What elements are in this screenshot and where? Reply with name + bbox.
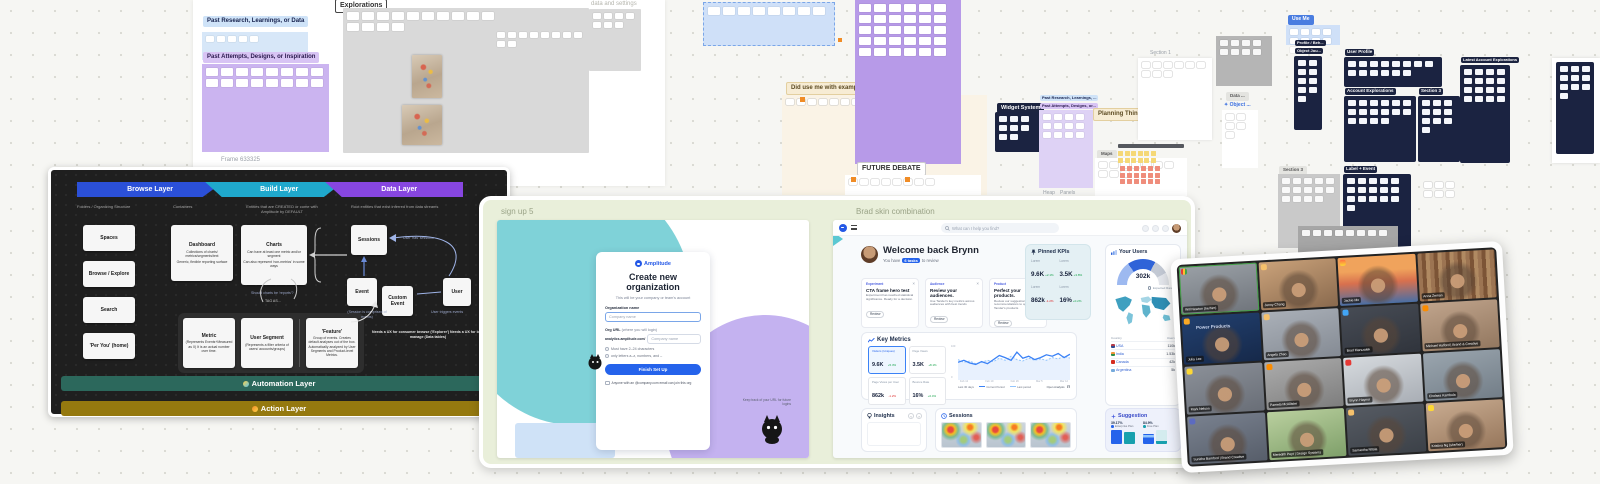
sparkle-icon <box>1111 414 1116 419</box>
attempts-panel[interactable] <box>202 64 329 152</box>
country-table: CountryUsers USA110k India1.53k Canada42… <box>1111 334 1175 374</box>
session-heatmap[interactable] <box>986 422 1027 448</box>
wireframe-chip <box>1165 162 1173 168</box>
attempts-pill-small[interactable]: Past Attempts, Designs, or... <box>1040 103 1098 109</box>
wireframe-chip <box>1582 75 1590 81</box>
fire-reaction-icon <box>1340 260 1346 266</box>
avatar[interactable] <box>1172 224 1181 233</box>
green-frame[interactable]: sign up 5 Brad skin combination Amplitud… <box>479 196 1195 468</box>
video-tile[interactable]: Michael Halford | Brand & Creative <box>1420 299 1500 351</box>
wireframe-chip <box>1144 151 1149 156</box>
wireframe-chip <box>904 4 916 12</box>
orange-sticky[interactable] <box>800 97 805 102</box>
kpi-item[interactable]: Lorem862k-1.2% <box>1031 285 1057 307</box>
video-tile[interactable]: Mark Nelson <box>1184 362 1264 414</box>
wireframe-chip <box>1346 230 1354 236</box>
wireframe-chip <box>859 37 871 45</box>
wireframe-chip <box>626 13 634 19</box>
wireframe-chip <box>1309 60 1317 66</box>
whiteboard-photo[interactable] <box>412 55 442 98</box>
wireframe-chip <box>1054 114 1062 120</box>
research-pill-small[interactable]: Past Research, Learnings, ... <box>1040 95 1098 101</box>
wireframe-chip <box>919 4 931 12</box>
wireframe-chip <box>407 12 419 20</box>
menu-icon[interactable] <box>851 225 857 230</box>
research-frame[interactable]: Past Research, Learnings, or Data Past A… <box>193 0 665 186</box>
wireframe-chip <box>1118 158 1123 163</box>
wireframe-chip <box>1347 178 1355 184</box>
latest-account-panel[interactable] <box>1460 65 1510 163</box>
tools-icon <box>252 406 258 412</box>
table-row[interactable]: USA110k <box>1111 342 1175 350</box>
wireframe-chip <box>859 48 871 56</box>
gray-widget-panel[interactable] <box>1216 36 1272 86</box>
trophy-reaction-icon <box>1184 318 1190 324</box>
wireframe-chip <box>1253 40 1261 46</box>
suggestion-group[interactable]: 39.17% Enterprise Plan <box>1111 421 1135 444</box>
amplitude-logo-icon <box>635 260 642 267</box>
wireframe-chip <box>1141 166 1146 171</box>
orange-sticky-3[interactable] <box>905 177 910 182</box>
wireframe-chip <box>1444 109 1452 115</box>
wireframe-chip <box>1381 118 1389 124</box>
video-tile[interactable]: Kristina Ng (she/her) <box>1425 399 1505 451</box>
video-tile[interactable]: Brad Marszalek <box>1340 304 1420 356</box>
wireframe-chip <box>206 79 218 87</box>
task-card-audience[interactable]: Audience× Review your audiences. Use Tan… <box>925 278 983 328</box>
user-profile-label[interactable]: User Profile <box>1345 49 1374 56</box>
wireframe-chip <box>1298 87 1306 93</box>
wireframe-chip <box>798 7 810 15</box>
table-row[interactable]: Canada42k <box>1111 359 1175 367</box>
wireframe-chip <box>1560 75 1568 81</box>
chart-reaction-icon <box>1181 269 1187 275</box>
wireframe-chip <box>1021 116 1029 122</box>
close-icon[interactable]: × <box>912 281 915 286</box>
edge-frame[interactable] <box>1552 58 1600 163</box>
wireframe-chip <box>1293 196 1301 202</box>
video-tile[interactable]: Jackie Mo <box>1337 254 1417 306</box>
wireframe-chip <box>1368 230 1376 236</box>
review-button[interactable]: Review <box>994 320 1012 327</box>
latest-account-explorations-label[interactable]: Latest Account Explorations <box>1461 57 1519 63</box>
wireframe-chip <box>1359 70 1367 76</box>
wireframe-chip <box>1142 71 1150 77</box>
wireframe-chip <box>1110 162 1118 168</box>
wireframe-chip <box>1226 123 1234 129</box>
table-row[interactable]: India1.53k <box>1111 350 1175 358</box>
checkbox-icon[interactable] <box>605 381 610 386</box>
use-me-label[interactable]: Use Me <box>1288 15 1314 25</box>
video-tile[interactable]: Chelsea Kambula <box>1422 349 1502 401</box>
wireframe-chip <box>482 12 494 20</box>
wireframe-chip <box>1138 151 1143 156</box>
wireframe-chip <box>889 4 901 12</box>
wireframe-chip <box>1347 196 1355 202</box>
wireframe-chip <box>1127 179 1132 184</box>
open-analysis-link[interactable]: Open Analysis <box>1047 385 1070 389</box>
key-metrics-chart-area[interactable]: 1000 Feb 12Feb 19Feb 26Mar 5Mar 12 Last … <box>952 346 1070 405</box>
wireframe-chip <box>377 23 389 31</box>
wireframe-chip <box>859 15 871 23</box>
video-tile[interactable]: Meredith Peyt | Design Systems <box>1266 408 1346 460</box>
close-icon[interactable]: × <box>976 281 979 286</box>
purple-column-panel[interactable] <box>855 0 961 164</box>
section1-label[interactable]: Section 1 <box>1150 50 1171 56</box>
metric-chip-pv-per-user[interactable]: Page Views per User862k -1.2% <box>868 377 906 405</box>
video-tile[interactable]: Angela Zhao <box>1261 308 1341 360</box>
review-button[interactable]: Review <box>866 311 884 318</box>
wireframe-chip <box>1326 187 1334 193</box>
wireframe-chip <box>889 26 901 34</box>
wireframe-chip <box>1392 61 1400 67</box>
signup-frame-label[interactable]: sign up 5 <box>501 207 533 216</box>
wireframe-chip <box>934 26 946 34</box>
next-button[interactable]: › <box>916 413 922 419</box>
wireframe-chip <box>1313 230 1321 236</box>
wireframe-chip <box>1444 118 1452 124</box>
wireframe-chip <box>1446 182 1454 188</box>
wireframe-chip <box>1315 187 1323 193</box>
help-icon[interactable] <box>1142 225 1149 232</box>
org-name-input[interactable]: Company name <box>605 312 701 322</box>
chat-reaction-icon <box>1342 310 1348 316</box>
wireframe-chip <box>1347 187 1355 193</box>
wireframe-chip <box>1560 84 1568 90</box>
wireframe-chip <box>1358 196 1366 202</box>
gauge-value: 302k <box>1111 273 1175 280</box>
wireframe-chip <box>552 32 560 38</box>
section1-frame[interactable] <box>1138 58 1212 140</box>
wireframe-chip <box>1120 173 1125 178</box>
wireframe-chip <box>221 68 233 76</box>
dashboard-screen: What can I help you find? Welcome back B… <box>833 220 1187 458</box>
welcome-heading: Welcome back Brynn <box>883 245 979 256</box>
wireframe-chip <box>1120 166 1125 171</box>
review-button[interactable]: Review <box>930 316 948 323</box>
signup-subtitle: This will be your company or team's acco… <box>605 296 701 300</box>
table-row[interactable]: Argentina5k <box>1111 367 1175 374</box>
wireframe-chip <box>1403 100 1411 106</box>
wireframe-chip <box>1138 158 1143 163</box>
prev-button[interactable]: ‹ <box>908 413 914 419</box>
wireframe-chip <box>1391 178 1399 184</box>
wireframe-chip <box>281 68 293 76</box>
wireframe-chip <box>1348 70 1356 76</box>
wireframe-chip <box>1298 69 1306 75</box>
wireframe-chip <box>1309 78 1317 84</box>
legend-current: Current Period <box>979 385 1005 389</box>
wireframe-chip <box>1571 84 1579 90</box>
future-debate-label[interactable]: FUTURE DEBATE <box>857 162 926 176</box>
wireframe-chip <box>783 7 795 15</box>
wireframe-chip <box>1403 109 1411 115</box>
wireframe-chip <box>1131 151 1136 156</box>
object-journey-label[interactable]: Object Jou... <box>1295 48 1323 54</box>
hand-reaction-icon <box>1260 264 1266 270</box>
wireframe-chip <box>1435 191 1443 197</box>
video-tile[interactable]: Samantha Ntlala <box>1346 404 1426 456</box>
video-tile[interactable]: Will Newton (he/him) <box>1179 263 1259 315</box>
wireframe-chip <box>1282 187 1290 193</box>
data-settings-panel[interactable] <box>589 9 641 71</box>
wireframe-chip <box>1253 49 1261 55</box>
wireframe-chip <box>723 7 735 15</box>
wireframe-chip <box>1560 93 1568 99</box>
research-pill[interactable]: Past Research, Learnings, or Data <box>203 16 308 27</box>
wireframe-chip <box>1304 178 1312 184</box>
wireframe-chip <box>871 179 879 185</box>
video-tile[interactable]: Power ProductsJulia Lee <box>1182 313 1262 365</box>
url-prefix: analytics.amplitude.com/ <box>605 337 645 341</box>
video-grid: Will Newton (he/him) Jenny Chang Jackie … <box>1177 247 1508 467</box>
session-heatmap[interactable] <box>941 422 982 448</box>
metric-chip-visitors[interactable]: Visitors (Uniques)9.6K +5.3% <box>868 346 906 374</box>
wireframe-chip <box>251 79 263 87</box>
video-tile[interactable]: Anna Zeman <box>1417 249 1497 301</box>
wireframe-chip <box>392 23 404 31</box>
attempts-pill[interactable]: Past Attempts, Designs, or Inspiration <box>203 52 319 63</box>
world-map[interactable] <box>1111 292 1177 326</box>
topbar-icons <box>1142 224 1181 233</box>
wireframe-chip <box>1282 178 1290 184</box>
selection-handle[interactable] <box>838 38 842 42</box>
wireframe-chip <box>1293 187 1301 193</box>
wireframe-chip <box>738 7 750 15</box>
wireframe-chip <box>1422 127 1430 133</box>
wireframe-chip <box>1392 100 1400 106</box>
profile-panel[interactable] <box>1294 56 1322 130</box>
wireframe-chip <box>392 12 404 20</box>
wireframe-chip <box>1290 29 1298 35</box>
video-tile[interactable]: Pamela McAllister <box>1264 358 1344 410</box>
wireframe-chip <box>1392 109 1400 115</box>
wireframe-chip <box>236 79 248 87</box>
metric-chip-pageviews[interactable]: Page Views3.5K +8.1% <box>909 346 947 374</box>
object-panel[interactable] <box>1222 110 1258 168</box>
wireframe-chip <box>1414 61 1422 67</box>
blue-heart-reaction-icon <box>1189 418 1195 424</box>
orange-reaction-icon <box>1266 364 1272 370</box>
wireframe-chip <box>904 37 916 45</box>
wireframe-chip <box>1497 69 1505 75</box>
wireframe-chip <box>893 179 901 185</box>
video-tile[interactable]: Jenny Chang <box>1258 258 1338 310</box>
gray-bar[interactable] <box>1118 144 1184 148</box>
user-profile-panel[interactable] <box>1344 57 1442 87</box>
wireframe-chip <box>1571 66 1579 72</box>
action-layer-bar: Action Layer <box>61 401 497 416</box>
wireframe-chip <box>1293 178 1301 184</box>
wireframe-chip <box>753 7 765 15</box>
video-tile[interactable]: Sunitha Bamford | Brand Creative <box>1187 412 1267 464</box>
wireframe-chip <box>362 23 374 31</box>
wireframe-chip <box>889 48 901 56</box>
sessions-panel: Sessions <box>935 408 1077 452</box>
wireframe-chip <box>1110 171 1118 177</box>
org-url-input[interactable]: Company name <box>647 334 701 344</box>
dashboard-frame-label[interactable]: Brad skin combination <box>856 207 935 216</box>
explorations-panel[interactable] <box>343 8 589 153</box>
wireframe-chip <box>926 179 934 185</box>
wireframe-chip <box>874 37 886 45</box>
account-explorations-panel[interactable] <box>1344 96 1416 162</box>
wireframe-chip <box>808 99 816 105</box>
wireframe-chip <box>934 48 946 56</box>
join-org-checkbox-row[interactable]: Anyone with an @company.com email can jo… <box>605 381 701 386</box>
finish-setup-button[interactable]: Finish Set Up <box>605 364 701 375</box>
scatter-wireframes[interactable] <box>1420 178 1468 218</box>
orange-sticky-2[interactable] <box>851 177 856 182</box>
wireframe-chip <box>1301 29 1309 35</box>
insights-panel: Insights ‹› <box>861 408 927 452</box>
wireframe-chip <box>1127 173 1132 178</box>
wireframe-chip <box>1381 70 1389 76</box>
wireframe-chip <box>311 68 323 76</box>
wireframe-chip <box>889 37 901 45</box>
wireframe-chip <box>1231 40 1239 46</box>
wireframe-chip <box>1186 62 1194 68</box>
wireframe-chip <box>1237 114 1245 120</box>
wireframe-chip <box>1298 60 1306 66</box>
wireframe-chip <box>1464 69 1472 75</box>
wireframe-chip <box>1141 179 1146 184</box>
future-debate-row[interactable] <box>845 175 981 195</box>
wireframe-chip <box>530 32 538 38</box>
wireframe-chip <box>1359 109 1367 115</box>
wireframe-chip <box>1134 179 1139 184</box>
wireframe-chip <box>1220 49 1228 55</box>
metric-chip-bounce[interactable]: Bounce Rate16% +0.4% <box>909 377 947 405</box>
wireframe-chip <box>934 4 946 12</box>
wireframe-chip <box>347 23 359 31</box>
user-avatar[interactable] <box>861 246 878 263</box>
wireframe-chip <box>1134 173 1139 178</box>
wireframe-chip <box>228 36 236 42</box>
wireframe-chip <box>508 41 516 47</box>
account-explorations-label[interactable]: Account Explorations <box>1345 88 1396 95</box>
frame-caption[interactable]: Frame 633325 <box>221 157 260 163</box>
wireframe-chip <box>874 4 886 12</box>
session-heatmap[interactable] <box>1030 422 1071 448</box>
cat-mascot-icon-2 <box>759 415 785 445</box>
wireframe-chip <box>999 125 1007 131</box>
wireframe-chip <box>1381 109 1389 115</box>
argentina-flag-icon <box>1111 369 1115 373</box>
wireframe-chip <box>1497 87 1505 93</box>
kpi-item[interactable]: Lorem3.5K+3.8% <box>1060 259 1086 281</box>
whiteboard-photo-2[interactable] <box>402 105 442 145</box>
wireframe-chip <box>919 26 931 34</box>
wireframe-chip <box>236 68 248 76</box>
signup-card: Amplitude Create new organization This w… <box>596 252 710 450</box>
red-stickies[interactable] <box>1120 166 1160 184</box>
kpi-item[interactable]: Lorem16%+0.2% <box>1060 285 1086 307</box>
wireframe-chip <box>1298 96 1306 102</box>
video-call-window[interactable]: Will Newton (he/him) Jenny Chang Jackie … <box>1170 241 1513 473</box>
wireframe-chip <box>1369 196 1377 202</box>
layers-slide[interactable]: Browse Layer Build Layer Data Layer Fold… <box>48 167 510 417</box>
wireframe-chip <box>296 79 308 87</box>
wireframe-chip <box>860 179 868 185</box>
wireframe-chip <box>1359 61 1367 67</box>
wireframe-chip <box>362 12 374 20</box>
wireframe-chip <box>508 32 516 38</box>
wireframe-chip <box>1304 187 1312 193</box>
object-label[interactable]: ✦ Object ... <box>1224 102 1251 108</box>
wireframe-chip <box>251 68 263 76</box>
kpi-item[interactable]: Lorem9.6K+2.1% <box>1031 259 1057 281</box>
section3-label[interactable]: Section 3 <box>1419 88 1443 95</box>
pinned-kpis-panel: Pinned KPIs Lorem9.6K+2.1% Lorem3.5K+3.8… <box>1025 244 1091 320</box>
search-input[interactable]: What can I help you find? <box>941 223 1059 233</box>
suggestion-group[interactable]: 84.9% Free Plan <box>1143 421 1167 444</box>
wireframe-chip <box>1370 100 1378 106</box>
wireframe-chip <box>1370 109 1378 115</box>
wireframe-chip <box>1464 78 1472 84</box>
wireframe-chip <box>1380 187 1388 193</box>
wireframe-chip <box>859 4 871 12</box>
data-label[interactable]: Data ... <box>1226 92 1249 101</box>
wireframe-chip <box>1125 158 1130 163</box>
india-flag-icon <box>1111 352 1115 356</box>
wireframe-chip <box>1560 66 1568 72</box>
wireframe-chip <box>1348 100 1356 106</box>
wireframe-chip <box>819 99 827 105</box>
wireframe-chip <box>841 99 849 105</box>
wireframe-chip <box>1155 179 1160 184</box>
wireframe-chip <box>919 15 931 23</box>
section3-panel[interactable] <box>1418 96 1460 162</box>
apps-icon[interactable] <box>1162 225 1169 232</box>
wireframe-chip <box>217 36 225 42</box>
sparkle-icon <box>243 381 249 387</box>
wireframe-chip <box>889 15 901 23</box>
wireframe-chip <box>1486 87 1494 93</box>
explorations-chips-2 <box>493 28 588 51</box>
label-event-label[interactable]: Label + Event <box>1344 166 1377 173</box>
amplitude-logo-icon[interactable] <box>839 224 847 232</box>
expected-range-note[interactable]: Expected Range <box>1111 286 1175 290</box>
wireframe-chip <box>1335 230 1343 236</box>
search-icon <box>945 226 950 231</box>
wireframe-chip <box>1486 96 1494 102</box>
tasks-badge[interactable]: 6 tasks <box>902 258 920 263</box>
blue-selection-panel[interactable] <box>703 2 835 46</box>
wireframe-chip <box>1304 196 1312 202</box>
wireframe-chip <box>1153 62 1161 68</box>
data-settings-label[interactable]: data and settings <box>591 1 637 7</box>
notifications-icon[interactable] <box>1152 225 1159 232</box>
widget-system-panel[interactable] <box>995 112 1041 152</box>
range-selector[interactable]: Last 30 days <box>958 385 974 389</box>
wireframe-chip <box>1380 196 1388 202</box>
wireframe-chip <box>874 26 886 34</box>
bulb-icon <box>867 413 872 419</box>
profile-label[interactable]: Profile / Beh... <box>1295 40 1326 46</box>
wireframe-chip <box>296 68 308 76</box>
wireframe-chip <box>768 7 780 15</box>
wireframe-chip <box>1324 230 1332 236</box>
wireframe-chip <box>1464 96 1472 102</box>
video-tile[interactable]: Brynn Haynor <box>1343 354 1423 406</box>
task-card-experiment[interactable]: Experiment× CTA frame hero test Experime… <box>861 278 919 328</box>
wireframe-chip <box>1226 114 1234 120</box>
attempts-panel-small[interactable] <box>1039 110 1093 188</box>
yellow-stickies[interactable] <box>1118 151 1156 163</box>
wireframe-chip <box>1497 78 1505 84</box>
wireframe-chip <box>452 12 464 20</box>
